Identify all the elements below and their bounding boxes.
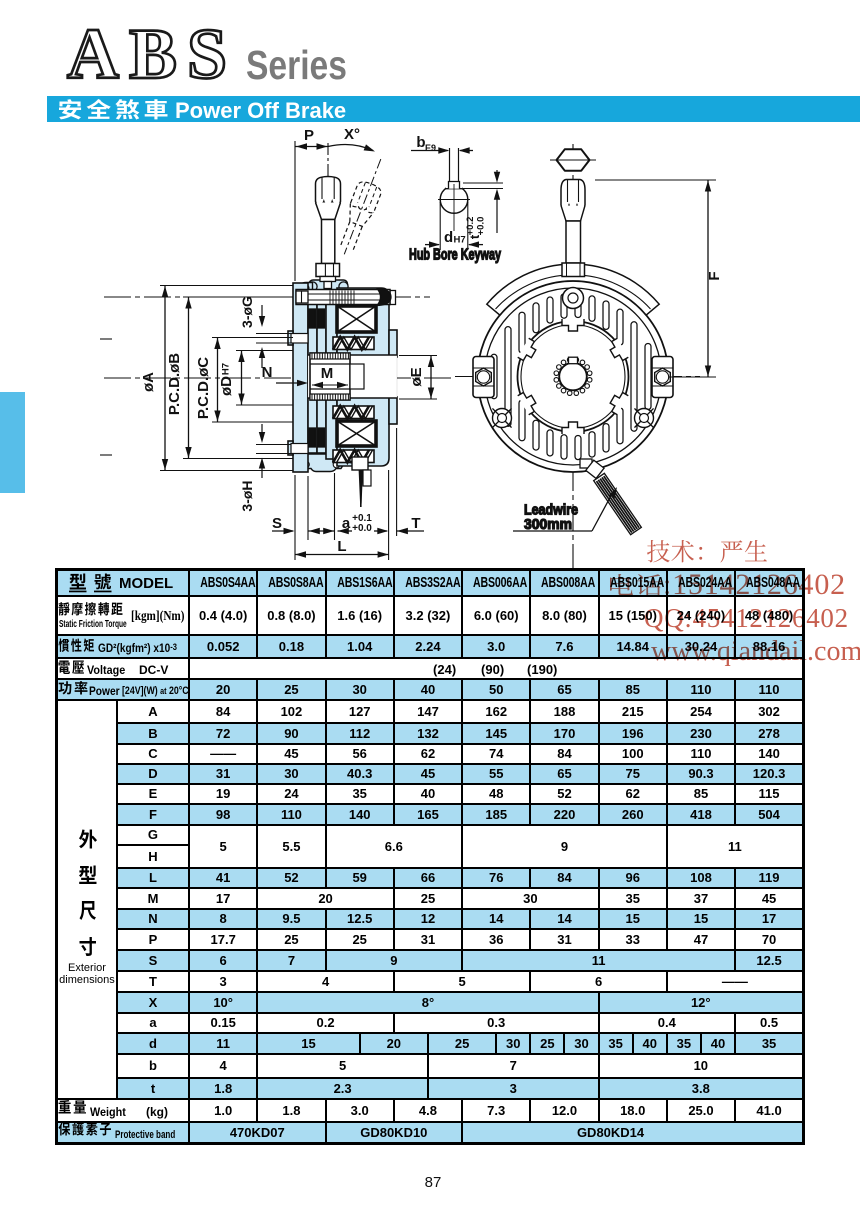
svg-text:L: L bbox=[337, 538, 346, 555]
svg-text:P: P bbox=[304, 127, 314, 144]
svg-text:øA: øA bbox=[140, 372, 157, 392]
svg-text:Hub Bore Keyway: Hub Bore Keyway bbox=[409, 247, 501, 264]
svg-text:M: M bbox=[321, 365, 334, 382]
svg-text:a: a bbox=[342, 515, 351, 532]
svg-text:N: N bbox=[262, 364, 273, 381]
svg-text:P.C.D.øB: P.C.D.øB bbox=[166, 353, 183, 415]
svg-text:d: d bbox=[444, 229, 453, 246]
svg-text:+0.0: +0.0 bbox=[476, 217, 487, 236]
svg-text:+0.0: +0.0 bbox=[352, 523, 372, 534]
svg-text:P.C.D.øC: P.C.D.øC bbox=[195, 357, 212, 419]
svg-text:3-øG: 3-øG bbox=[239, 296, 255, 328]
svg-text:H7: H7 bbox=[221, 363, 232, 375]
svg-text:T: T bbox=[411, 515, 420, 532]
svg-text:H7: H7 bbox=[454, 235, 466, 246]
svg-text:3-øH: 3-øH bbox=[239, 480, 255, 511]
svg-text:S: S bbox=[272, 515, 282, 532]
svg-text:øD: øD bbox=[218, 376, 235, 396]
svg-text:+0.2: +0.2 bbox=[465, 217, 476, 236]
svg-text:F: F bbox=[706, 271, 723, 280]
svg-text:E9: E9 bbox=[425, 143, 436, 153]
svg-text:øE: øE bbox=[408, 367, 425, 386]
svg-text:X°: X° bbox=[344, 126, 360, 143]
